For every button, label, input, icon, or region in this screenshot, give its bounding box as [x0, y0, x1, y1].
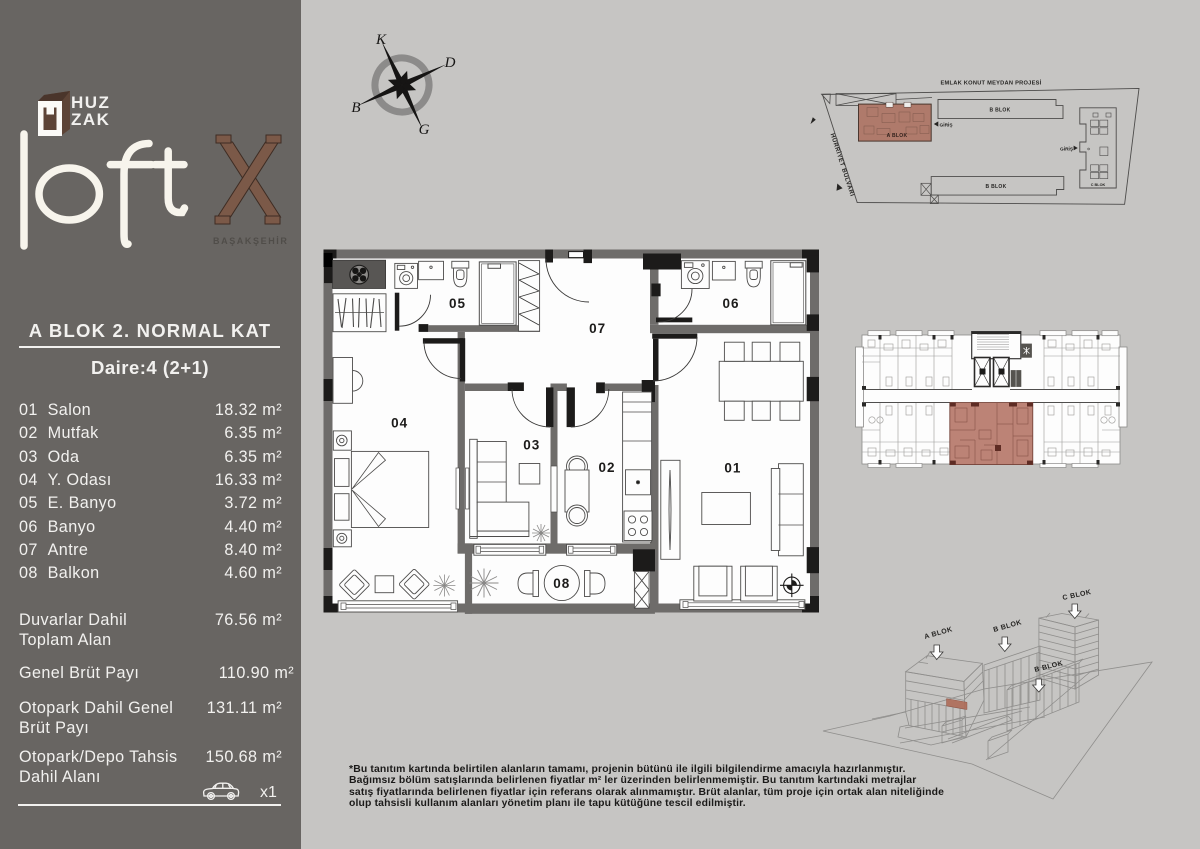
svg-text:G: G [419, 122, 430, 138]
svg-text:HÜRRİYET BULVARI: HÜRRİYET BULVARI [829, 132, 856, 197]
svg-text:A BLOK: A BLOK [924, 626, 954, 641]
svg-text:04: 04 [391, 416, 408, 431]
svg-text:B: B [351, 100, 360, 116]
svg-text:B BLOK: B BLOK [990, 108, 1011, 114]
svg-text:GİRİŞ: GİRİŞ [940, 121, 954, 128]
svg-text:B BLOK: B BLOK [986, 184, 1007, 190]
svg-text:D: D [444, 55, 456, 71]
svg-text:C BLOK: C BLOK [1091, 183, 1106, 187]
svg-text:EMLAK KONUT MEYDAN PROJESİ: EMLAK KONUT MEYDAN PROJESİ [941, 80, 1042, 87]
svg-text:07: 07 [589, 321, 606, 336]
svg-text:05: 05 [449, 296, 466, 311]
svg-text:K: K [375, 32, 387, 48]
svg-text:03: 03 [523, 438, 540, 453]
svg-text:C BLOK: C BLOK [1062, 589, 1092, 602]
svg-text:B BLOK: B BLOK [993, 619, 1023, 634]
svg-text:02: 02 [598, 460, 615, 475]
svg-text:01: 01 [724, 461, 741, 476]
svg-text:08: 08 [553, 576, 570, 591]
svg-text:GİRİŞ: GİRİŞ [1060, 145, 1074, 152]
svg-text:06: 06 [722, 296, 739, 311]
svg-text:A BLOK: A BLOK [887, 133, 908, 139]
